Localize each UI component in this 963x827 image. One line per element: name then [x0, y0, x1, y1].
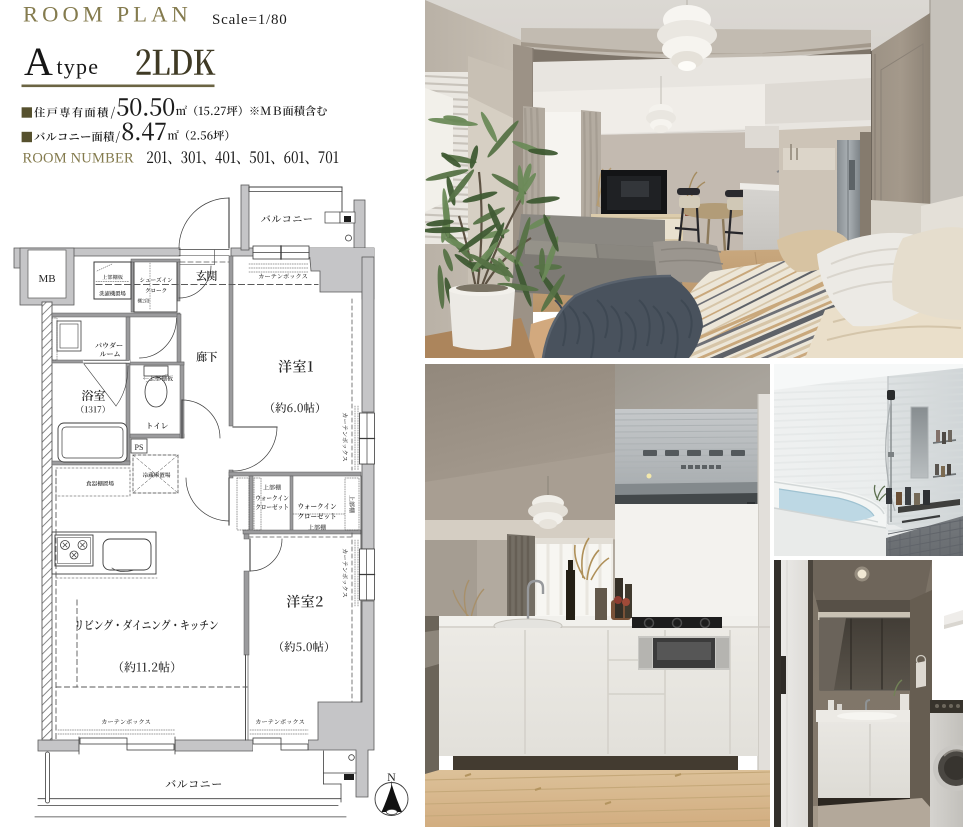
svg-text:PS: PS: [135, 443, 144, 452]
svg-text:ROOM PLAN: ROOM PLAN: [23, 2, 192, 27]
svg-text:MB: MB: [38, 273, 55, 285]
svg-text:ROOM NUMBER: ROOM NUMBER: [23, 151, 134, 167]
svg-text:A: A: [24, 39, 53, 84]
svg-text:type: type: [57, 54, 100, 79]
svg-text:Scale=1/80: Scale=1/80: [212, 12, 288, 28]
